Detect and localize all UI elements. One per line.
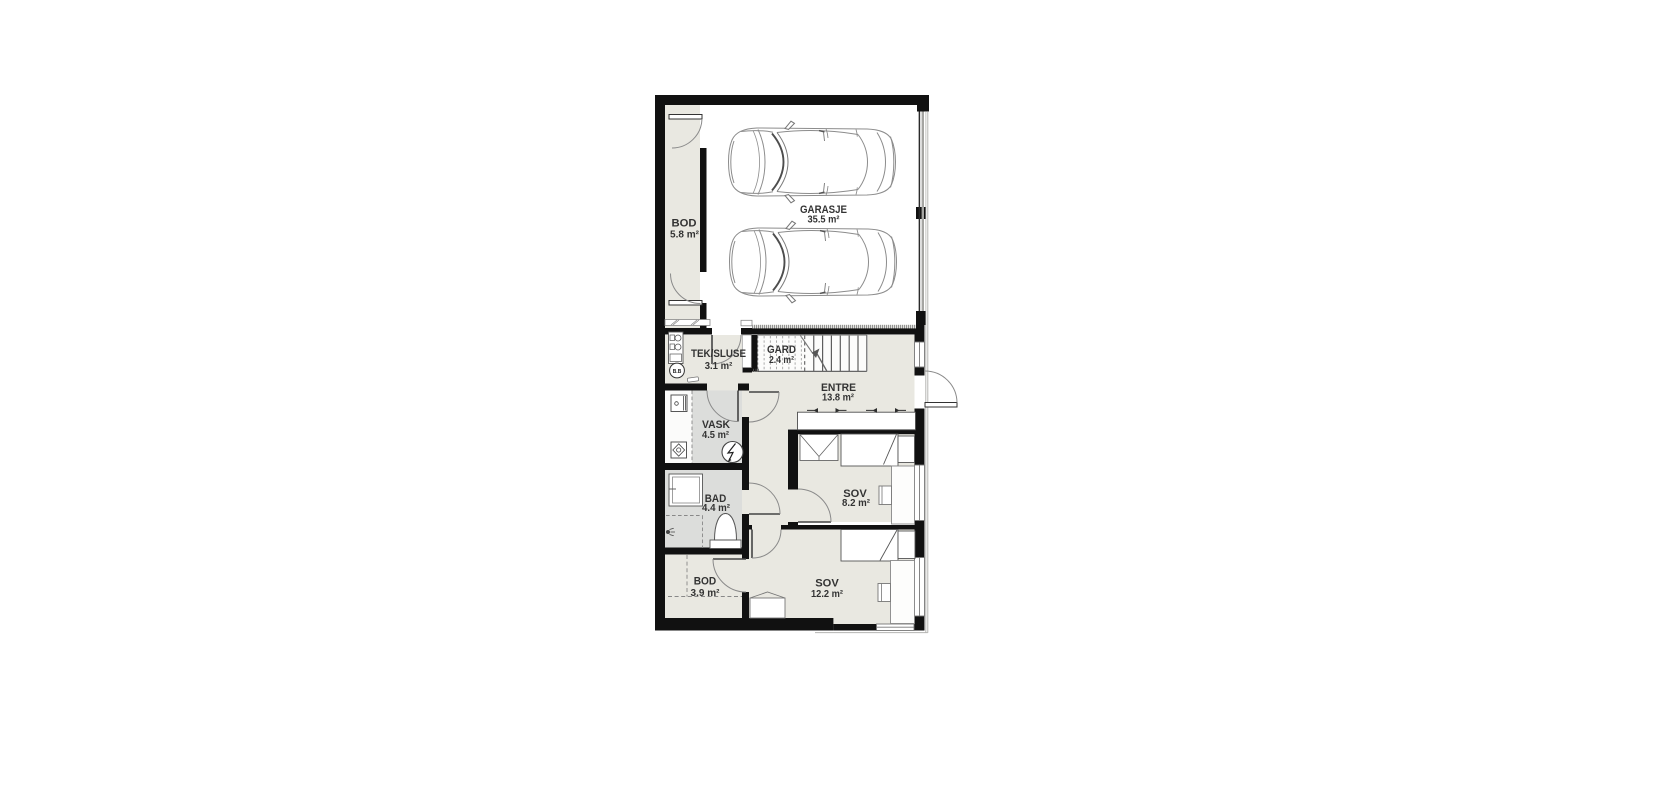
- svg-text:VASK: VASK: [702, 419, 730, 431]
- svg-text:4.5 m²: 4.5 m²: [702, 430, 730, 441]
- svg-text:5.8 m²: 5.8 m²: [670, 229, 700, 240]
- svg-text:BOD: BOD: [672, 218, 697, 230]
- svg-text:3.1 m²: 3.1 m²: [705, 361, 733, 372]
- svg-text:4.4 m²: 4.4 m²: [702, 503, 731, 514]
- svg-text:B.B: B.B: [673, 369, 682, 375]
- svg-text:13.8 m²: 13.8 m²: [822, 393, 855, 404]
- svg-text:3.9 m²: 3.9 m²: [691, 588, 721, 599]
- svg-text:2.4 m²: 2.4 m²: [769, 355, 794, 366]
- svg-text:8.2 m²: 8.2 m²: [842, 498, 871, 509]
- svg-text:35.5 m²: 35.5 m²: [808, 214, 841, 225]
- svg-text:SOV: SOV: [815, 578, 839, 590]
- svg-text:12.2 m²: 12.2 m²: [811, 589, 844, 600]
- svg-text:BOD: BOD: [694, 576, 717, 588]
- svg-text:TEK/SLUSE: TEK/SLUSE: [691, 348, 746, 360]
